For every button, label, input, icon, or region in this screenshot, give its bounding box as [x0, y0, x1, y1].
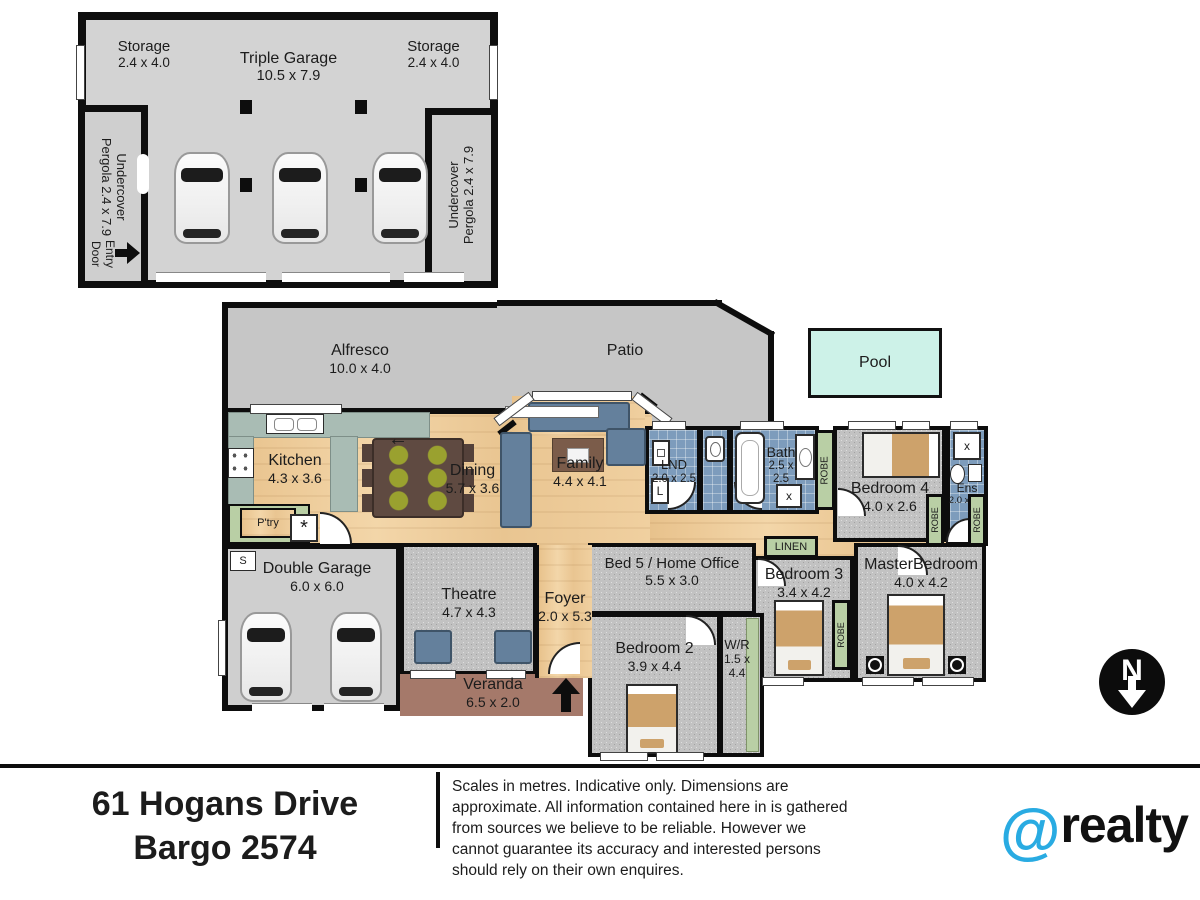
garage-building-window-right	[489, 45, 498, 100]
garage-pillar-2	[355, 100, 367, 114]
foyer-label: Foyer	[537, 590, 593, 608]
theatre-armchair-left	[414, 630, 452, 664]
bedroom2-window-1	[600, 752, 648, 761]
bedroom3-robe: ROBE	[832, 600, 850, 670]
realty-logo-word: realty	[1060, 797, 1187, 853]
realty-logo: @realty	[1000, 796, 1188, 867]
ensuite-robe-left-label: ROBE	[930, 507, 940, 533]
triple-garage-car-3	[372, 152, 428, 244]
bedroom4-robe-label: ROBE	[820, 456, 831, 484]
kitchen-sink	[266, 414, 324, 434]
master-dims: 4.0 x 4.2	[856, 574, 986, 590]
pantry-box: P'try	[240, 508, 296, 538]
pergola-left: Undercover Pergola 2.4 x 7.9 Entry Door	[78, 105, 148, 288]
garage-car-2	[330, 612, 382, 702]
garage-door-gap-1	[252, 703, 312, 712]
garage-door-gap-2	[324, 703, 384, 712]
garage-pillar-1	[240, 100, 252, 114]
bedroom4-window-1	[848, 421, 896, 430]
triple-garage-opening-3	[404, 272, 464, 282]
master-window-2	[922, 677, 974, 686]
bath-toilet-label: x	[786, 489, 792, 503]
wr-label: W/R	[716, 638, 758, 653]
pergola-right: Undercover Pergola 2.4 x 7.9	[425, 108, 498, 288]
ensuite-shower: x	[953, 432, 981, 460]
linen-label: LINEN	[775, 541, 807, 553]
laundry-window	[652, 421, 686, 430]
garage-window-left	[218, 620, 226, 676]
triple-garage-car-2	[272, 152, 328, 244]
alfresco-label: Alfresco	[290, 342, 430, 360]
kitchen-dims: 4.3 x 3.6	[240, 470, 350, 486]
patio-wall-right	[768, 331, 774, 430]
north-arrow-icon: N	[1096, 646, 1168, 718]
laundry-dims: 2.0 x 2.5	[648, 473, 700, 486]
theatre-armchair-right	[494, 630, 532, 664]
master-nightstand-left	[866, 656, 884, 674]
garage-pillar-3	[240, 178, 252, 192]
master-bed-icon	[887, 594, 945, 676]
wr-dims: 1.5 x 4.4	[716, 653, 758, 681]
bedroom3-dims: 3.4 x 4.2	[754, 584, 854, 600]
ensuite-robe-left: ROBE	[926, 494, 944, 546]
kitchen-label: Kitchen	[240, 452, 350, 470]
dining-dims: 5.7 x 3.6	[420, 480, 525, 496]
patio-wall-top	[497, 300, 722, 306]
footer-vertical-rule	[436, 772, 440, 848]
entry-door-label: Entry Door	[89, 224, 117, 284]
veranda-dims: 6.5 x 2.0	[428, 694, 558, 710]
theatre-label: Theatre	[414, 586, 524, 604]
dining-label: Dining	[420, 462, 525, 480]
pool-label: Pool	[859, 354, 891, 372]
bedroom2-dims: 3.9 x 4.4	[602, 658, 707, 674]
pool: Pool	[808, 328, 942, 398]
ensuite-shower-label: x	[964, 439, 970, 453]
master-nightstand-right	[948, 656, 966, 674]
alfresco-dims: 10.0 x 4.0	[290, 360, 430, 376]
bath-dims: 2.5 x 2.5	[760, 460, 802, 486]
family-label: Family	[530, 455, 630, 473]
bedroom2-bed-icon	[626, 684, 678, 754]
bay-window-top	[532, 391, 632, 401]
property-address: 61 Hogans Drive Bargo 2574	[30, 782, 420, 870]
realty-logo-at: @	[1000, 797, 1060, 866]
slider-arrow: ←	[388, 428, 408, 451]
storage-right-label: Storage	[381, 38, 486, 55]
triple-garage-car-1	[174, 152, 230, 244]
bedroom2-label: Bedroom 2	[602, 640, 707, 658]
triple-garage-opening-2	[282, 272, 390, 282]
triple-garage-opening-1	[156, 272, 266, 282]
bedroom2-window-2	[656, 752, 704, 761]
ensuite-window	[950, 421, 978, 430]
ensuite-robe-right-label: ROBE	[972, 507, 982, 533]
double-garage-label: Double Garage	[242, 560, 392, 578]
garage-car-1	[240, 612, 292, 702]
laundry-label: LND	[648, 458, 700, 473]
master-label: MasterBedroom	[856, 556, 986, 574]
bedroom4-bed-icon	[862, 432, 940, 478]
foyer-dims: 2.0 x 5.3	[537, 608, 593, 624]
bedroom3-bed-icon	[774, 600, 824, 676]
asterisk-label: *	[300, 517, 308, 540]
bath-label: Bath	[760, 444, 802, 460]
bedroom3-label: Bedroom 3	[754, 566, 854, 584]
pergola-right-label: Undercover Pergola 2.4 x 7.9	[446, 130, 476, 260]
broom-closet: *	[290, 514, 318, 542]
garage-building-window-left	[76, 45, 85, 100]
kitchen-window	[250, 404, 342, 414]
triple-garage-label: Triple Garage	[181, 50, 396, 68]
wc-toilet	[705, 436, 725, 462]
disclaimer-text: Scales in metres. Indicative only. Dimen…	[452, 776, 848, 881]
entry-door-arrow	[115, 242, 141, 264]
pantry-label: P'try	[257, 517, 279, 529]
footer-divider	[0, 764, 1200, 768]
family-dims: 4.4 x 4.1	[530, 473, 630, 489]
veranda-label: Veranda	[428, 676, 558, 694]
bath-window	[740, 421, 784, 430]
theatre-dims: 4.7 x 4.3	[414, 604, 524, 620]
bed5-label: Bed 5 / Home Office	[592, 555, 752, 572]
bedroom3-window	[762, 677, 804, 686]
bedroom4-window-2	[902, 421, 930, 430]
pergola-door-gap	[137, 154, 149, 194]
bed5-dims: 5.5 x 3.0	[592, 572, 752, 588]
patio-label: Patio	[570, 342, 680, 360]
ensuite-vanity	[968, 464, 982, 482]
ensuite-robe-right: ROBE	[968, 494, 986, 546]
address-line1: 61 Hogans Drive	[30, 782, 420, 826]
bath-toilet: x	[776, 484, 802, 508]
garage-pillar-4	[355, 178, 367, 192]
floorplan-canvas: Alfresco 10.0 x 4.0 Patio Pool ← OVN Kit…	[0, 0, 1200, 900]
double-garage-dims: 6.0 x 6.0	[242, 578, 392, 594]
entry-arrow	[552, 678, 580, 712]
master-window-1	[862, 677, 914, 686]
linen-closet: LINEN	[764, 536, 818, 558]
triple-garage-dims: 10.5 x 7.9	[181, 68, 396, 85]
garage-building: Storage 2.4 x 4.0 Triple Garage 10.5 x 7…	[78, 12, 498, 288]
bedroom4-robe: ROBE	[815, 430, 835, 510]
address-line2: Bargo 2574	[30, 826, 420, 870]
storage-right-dims: 2.4 x 4.0	[381, 55, 486, 71]
bedroom3-robe-label: ROBE	[836, 622, 846, 648]
